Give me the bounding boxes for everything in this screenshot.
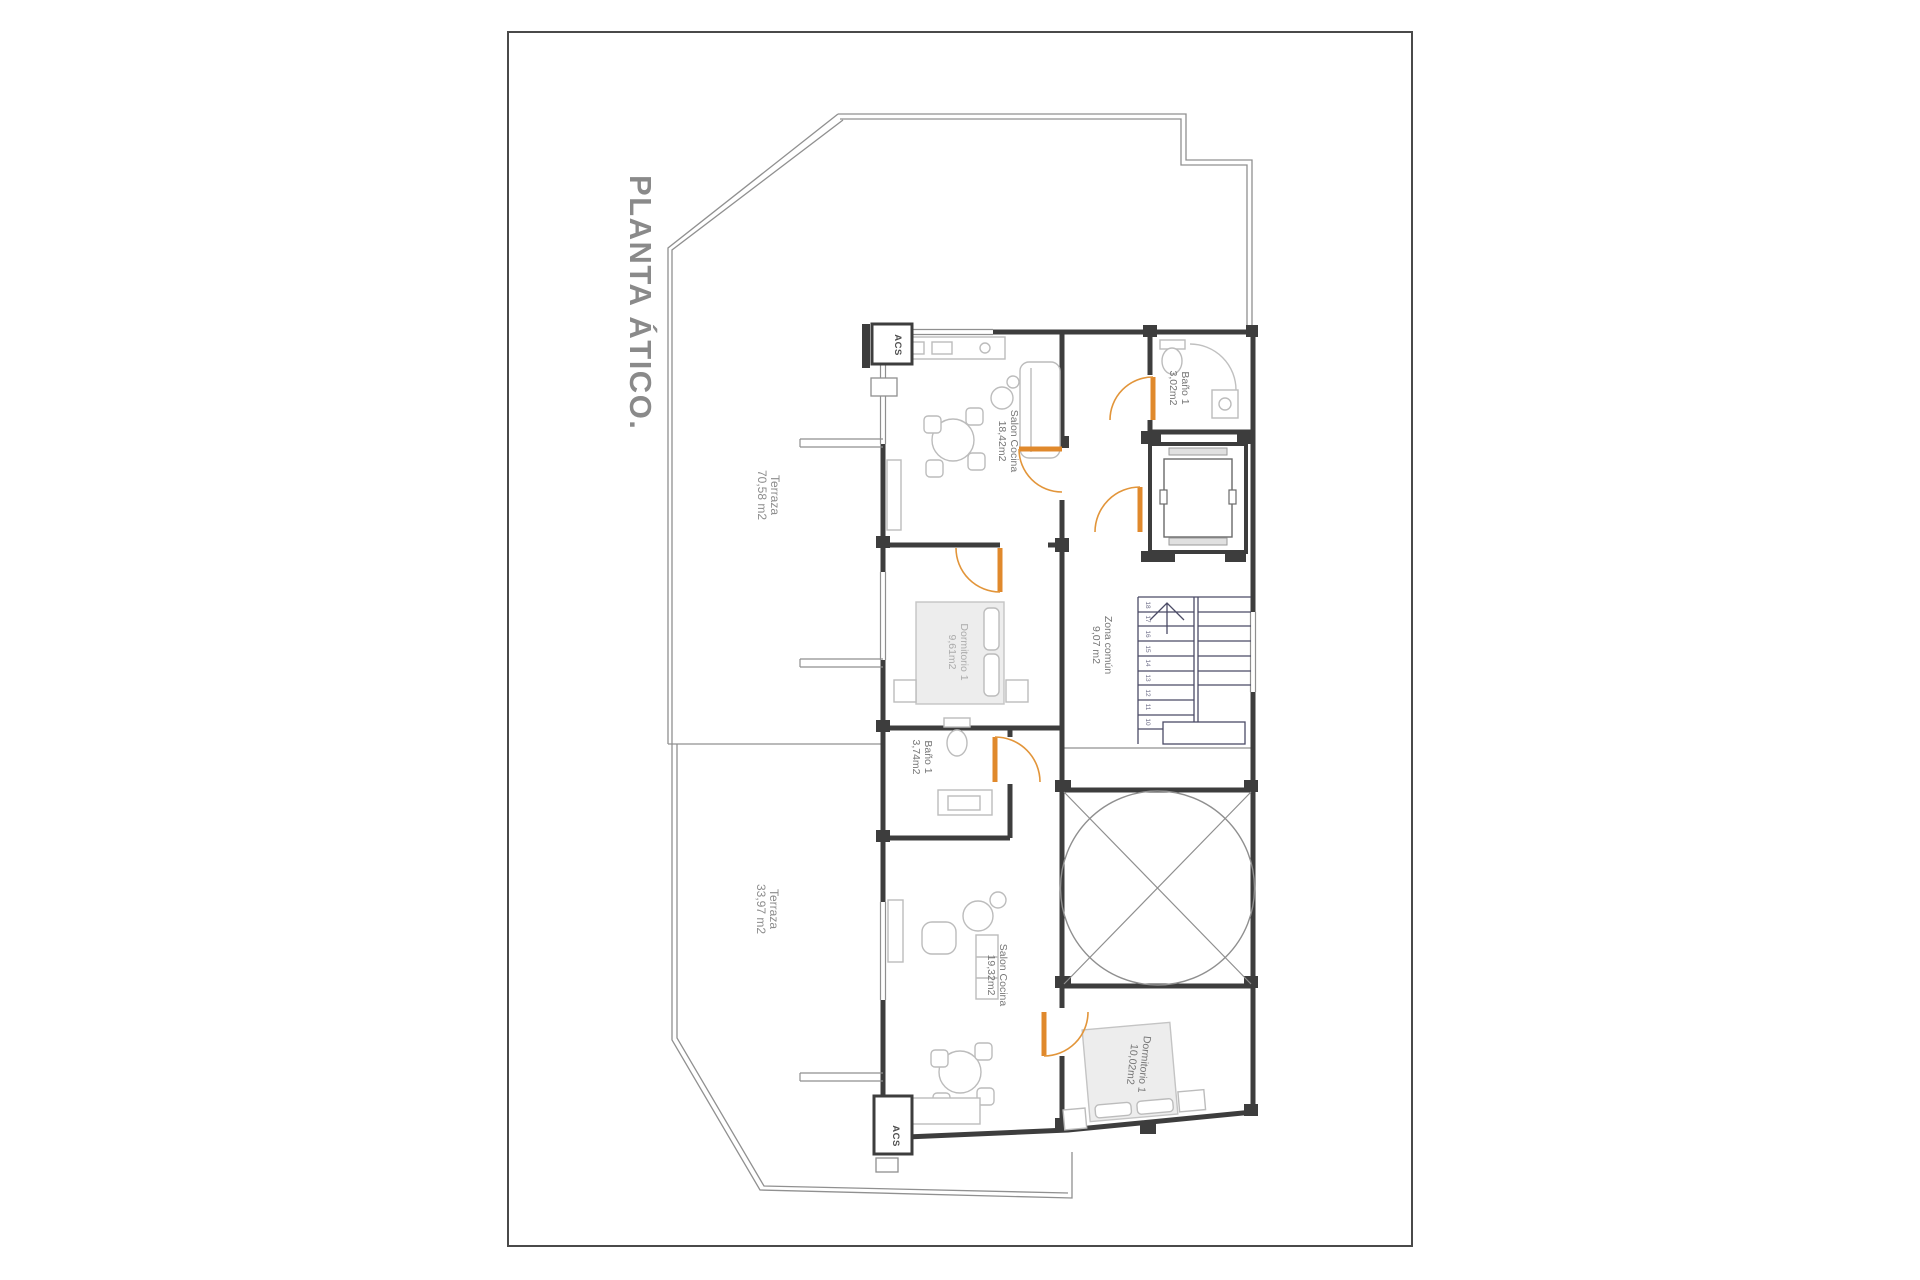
nightstand — [894, 680, 916, 702]
armchair-lower — [922, 922, 956, 954]
side-table-lower — [963, 901, 993, 931]
label-salon-lower-name: Salon Cocina — [997, 944, 1009, 1007]
chair — [924, 416, 941, 433]
tread-11: 11 — [1144, 704, 1151, 711]
side-table-small-upper — [1007, 376, 1019, 388]
chair — [931, 1050, 948, 1067]
label-dormitorio-upper-name: Dormitorio 1 — [958, 623, 970, 680]
tv-unit-upper — [887, 460, 901, 530]
label-dormitorio-upper-area: 9,61m2 — [946, 634, 958, 669]
chair — [968, 453, 985, 470]
floorplan-drawing: PLANTA ÁTICO. — [0, 0, 1920, 1280]
tread-10: 10 — [1144, 718, 1151, 726]
toilet-lower — [947, 730, 967, 756]
desk-lower — [888, 900, 903, 962]
toilet-tank-lower — [944, 718, 970, 727]
stair-tread-numbers: 18 17 16 15 14 13 12 11 10 — [1144, 601, 1151, 726]
label-bano-upper-area: 3,02m2 — [1167, 370, 1179, 405]
tread-15: 15 — [1144, 645, 1151, 653]
acs-aux-upper — [871, 378, 897, 396]
label-bano-lower-area: 3,74m2 — [910, 739, 922, 774]
elevator-guide-left — [1160, 490, 1167, 504]
nightstand — [1006, 680, 1028, 702]
elevator-car — [1164, 459, 1232, 537]
label-acs-upper: ACS — [892, 334, 903, 356]
tread-18: 18 — [1144, 601, 1151, 609]
tread-14: 14 — [1144, 659, 1151, 667]
label-salon-upper-name: Salon Cocina — [1008, 410, 1020, 473]
label-terraza-lower-area: 33,97 m2 — [754, 884, 768, 934]
chair — [966, 408, 983, 425]
pillow — [984, 654, 999, 696]
label-bano-upper-name: Baño 1 — [1179, 371, 1191, 404]
elevator — [1141, 431, 1255, 562]
nightstand — [1063, 1108, 1087, 1130]
chair — [926, 460, 943, 477]
elevator-guide-right — [1229, 490, 1236, 504]
tread-13: 13 — [1144, 674, 1151, 682]
chair — [975, 1043, 992, 1060]
stair-landing — [1163, 722, 1245, 744]
pillow — [1095, 1102, 1132, 1118]
elevator-rail-top — [1169, 448, 1227, 455]
label-bano-lower-name: Baño 1 — [922, 740, 934, 773]
pillow — [984, 608, 999, 650]
label-acs-lower: ACS — [890, 1125, 901, 1147]
label-salon-lower-area: 19,32m2 — [985, 955, 997, 996]
sink-basin-upper — [1219, 398, 1231, 410]
elevator-rail-bottom — [1169, 538, 1227, 545]
sink-basin-lower — [948, 796, 980, 810]
label-zona-comun-area: 9,07 m2 — [1090, 626, 1102, 664]
tread-12: 12 — [1144, 689, 1151, 697]
side-table-upper — [991, 387, 1013, 409]
floorplan-page: PLANTA ÁTICO. — [0, 0, 1920, 1280]
tread-16: 16 — [1144, 630, 1151, 638]
kitchen-hob-upper — [932, 342, 952, 354]
label-terraza-upper-area: 70,58 m2 — [755, 470, 769, 520]
pillow — [1137, 1098, 1174, 1114]
label-terraza-lower-name: Terraza — [767, 889, 781, 929]
acs-aux-lower — [876, 1158, 898, 1172]
kitchen-detail-upper — [980, 343, 990, 353]
label-zona-comun-name: Zona común — [1102, 616, 1114, 675]
tread-17: 17 — [1144, 615, 1151, 623]
plan-title: PLANTA ÁTICO. — [623, 175, 658, 430]
label-terraza-upper-name: Terraza — [768, 475, 782, 515]
side-table-small-lower — [990, 892, 1006, 908]
label-salon-upper-area: 18,42m2 — [996, 421, 1008, 462]
sofa-upper — [1020, 362, 1060, 458]
acs-box-upper — [872, 324, 912, 364]
nightstand — [1178, 1090, 1206, 1112]
